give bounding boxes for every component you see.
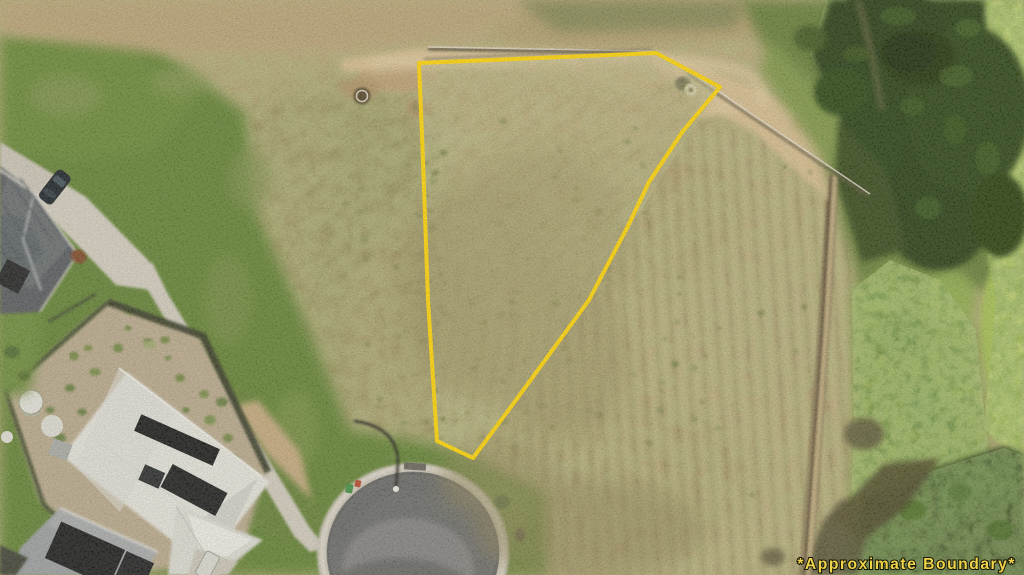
svg-text:*Approximate Boundary*: *Approximate Boundary* bbox=[797, 556, 1016, 573]
